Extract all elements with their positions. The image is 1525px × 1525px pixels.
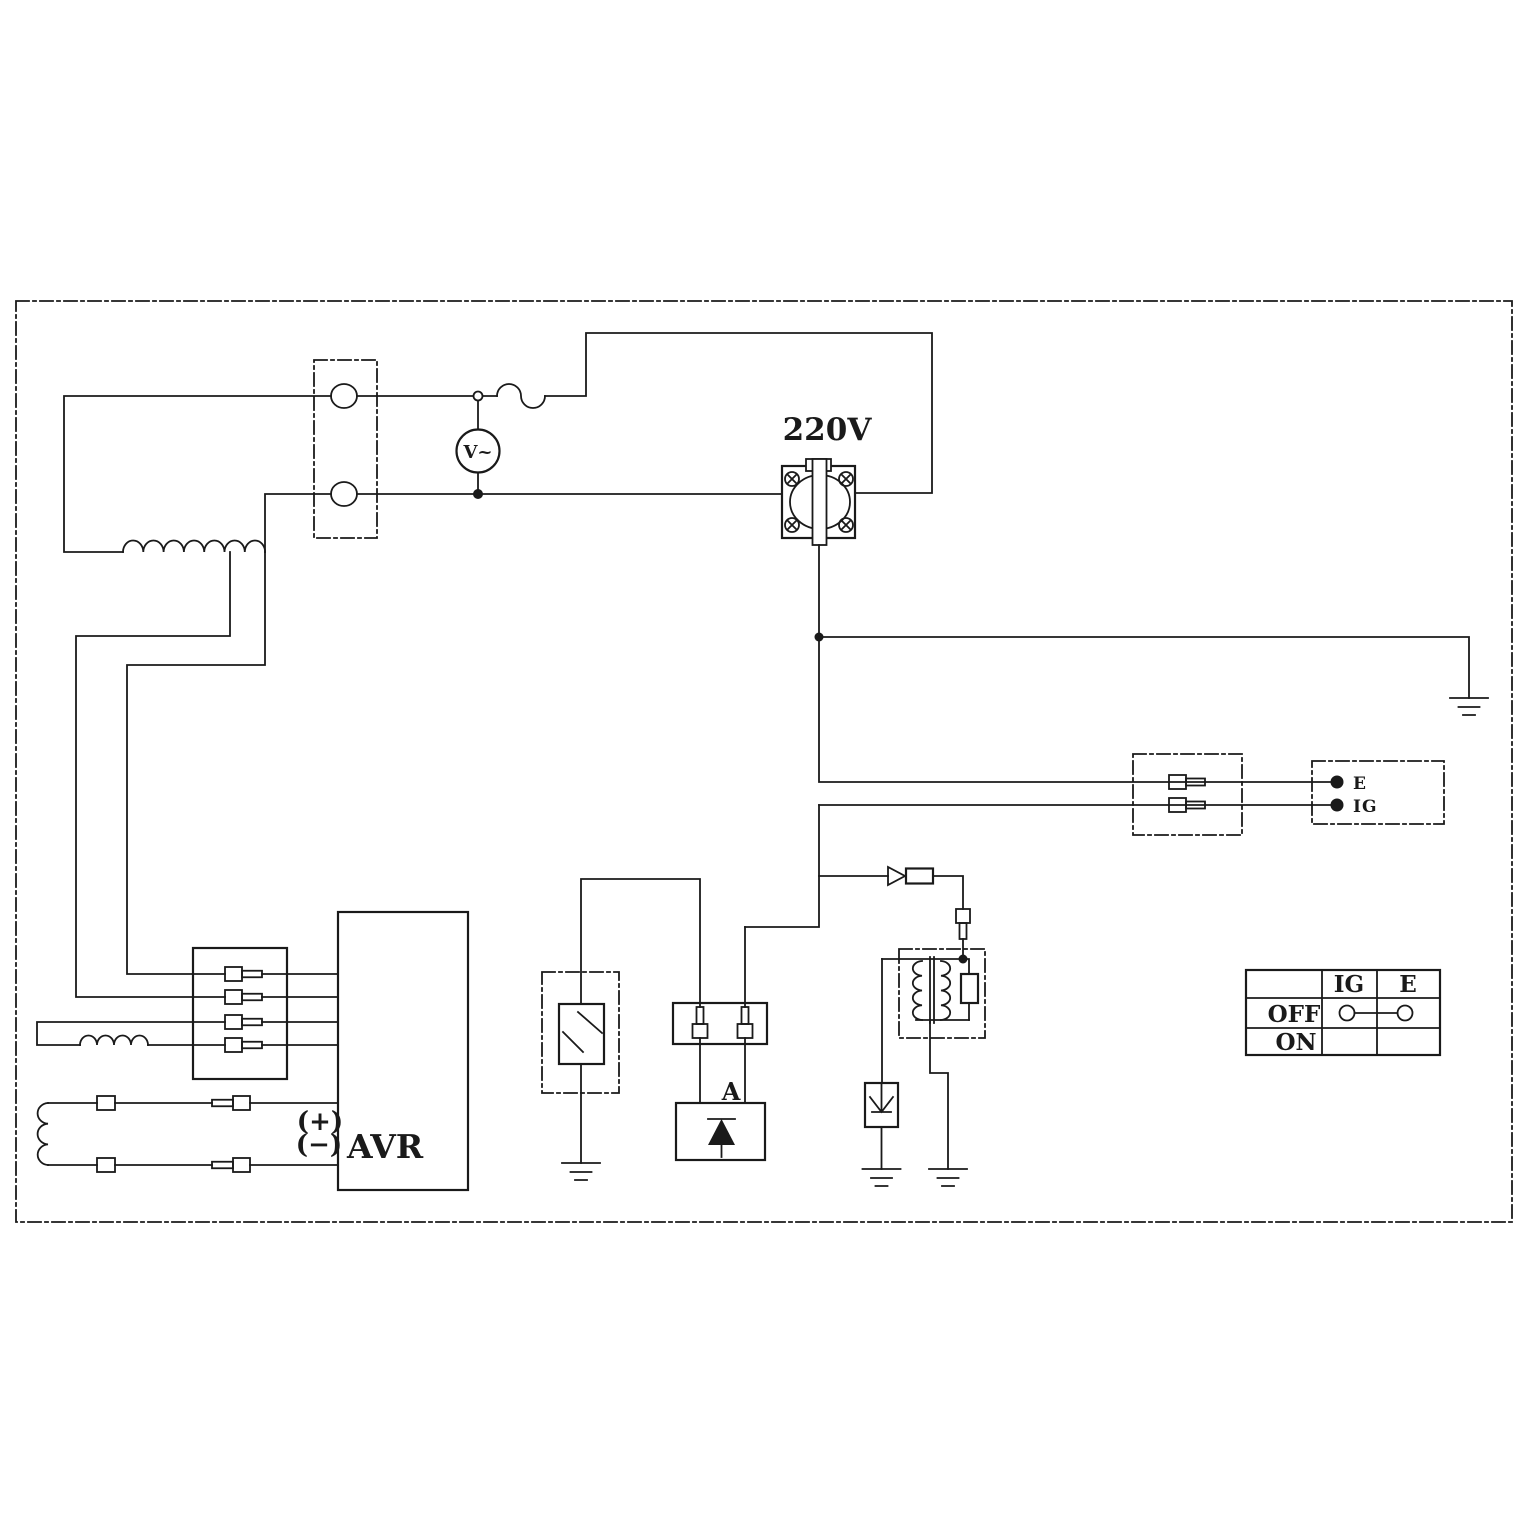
spark-plug <box>865 1083 898 1169</box>
diode-triangle-icon <box>708 1119 735 1145</box>
ground-symbol <box>562 1163 600 1180</box>
terminal-circle-top <box>331 384 357 408</box>
spark-gap-icon <box>870 1083 893 1112</box>
resistor <box>961 974 978 1003</box>
earth-and-key-lines <box>745 545 1469 927</box>
avr-label: AVR <box>346 1127 424 1166</box>
two-pin-pigtail-connector <box>1133 754 1242 835</box>
diagram-frame <box>16 301 1512 1222</box>
ground-symbol <box>863 1169 901 1186</box>
sense-winding <box>37 1022 225 1045</box>
ground-symbol <box>1450 698 1488 715</box>
pin-blade <box>742 1007 749 1024</box>
inline-pin-connector <box>956 909 970 939</box>
switch-slashes <box>563 1012 602 1052</box>
pin-square <box>738 1024 753 1038</box>
inline-connector <box>97 1158 115 1172</box>
pin-square <box>233 1158 250 1172</box>
avr-box: AVR (+) (−) <box>296 912 468 1190</box>
output-connector-block <box>314 360 377 538</box>
engine-terminal-box: E IG <box>1312 761 1444 824</box>
table-row-off: OFF <box>1268 1001 1321 1028</box>
voltmeter: V~ <box>457 430 500 473</box>
junction-dot <box>473 489 483 499</box>
blocking-diode <box>888 867 905 885</box>
pin <box>225 967 262 1052</box>
avr-connector-4pin <box>193 948 338 1079</box>
switch-contact-e <box>1398 1006 1413 1021</box>
diode-unit-label: A <box>721 1077 741 1106</box>
pin-blade <box>212 1162 233 1169</box>
table-row-on: ON <box>1275 1029 1316 1056</box>
sense-coil <box>80 1036 148 1046</box>
ignition-coil <box>882 949 985 1169</box>
stator-coil <box>123 541 265 553</box>
pin-square <box>693 1024 708 1038</box>
diode-unit: A <box>676 1077 765 1160</box>
plug-slot <box>813 459 827 545</box>
primary-winding <box>913 961 922 1020</box>
terminal-e-dot <box>1331 776 1344 789</box>
terminal-ig-dot <box>1331 799 1344 812</box>
terminal-circle-bottom <box>331 482 357 506</box>
generator-wiring-schematic: V~ 220V <box>0 0 1525 1525</box>
field-winding <box>38 1096 338 1172</box>
table-col-ig: IG <box>1334 971 1364 998</box>
ignition-switch-table: IG E OFF ON <box>1246 970 1440 1056</box>
ground-symbol <box>929 1169 967 1186</box>
terminal-e-label: E <box>1353 774 1367 794</box>
voltmeter-label: V~ <box>462 442 492 463</box>
pin-square <box>233 1096 250 1110</box>
pin-blade <box>212 1100 233 1107</box>
field-coil <box>38 1103 48 1165</box>
secondary-winding <box>941 961 950 1020</box>
switch-contact-ig <box>1340 1006 1355 1021</box>
table-col-e: E <box>1399 971 1417 998</box>
main-winding <box>64 396 331 997</box>
coil-core <box>930 957 934 1023</box>
avr-negative-label: (−) <box>296 1130 342 1160</box>
diode-unit-connector <box>673 927 767 1103</box>
junction-open <box>474 392 483 401</box>
wiring-diagram-page: { "colors": { "line": "#1a1a1a", "backgr… <box>0 0 1525 1525</box>
terminal-ig-label: IG <box>1353 797 1377 817</box>
resistor <box>906 869 933 884</box>
inline-connector <box>97 1096 115 1110</box>
receptacle-220v: 220V <box>782 412 872 545</box>
pin-blade <box>697 1007 704 1024</box>
fuse <box>497 384 545 408</box>
receptacle-voltage-label: 220V <box>783 412 873 448</box>
